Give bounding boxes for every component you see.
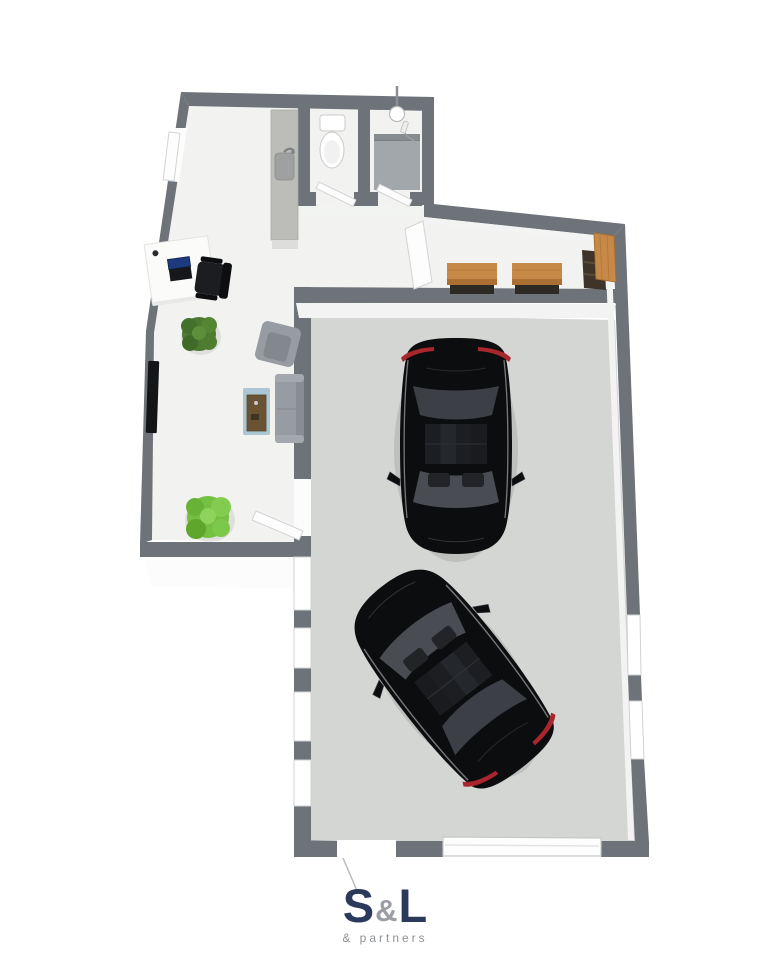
foliage	[212, 519, 230, 537]
face-office-bottom	[144, 557, 311, 589]
table-item-2	[254, 401, 258, 405]
bench-shadow	[450, 284, 494, 294]
coffee-table	[243, 388, 270, 435]
wall-bottom-seg-2	[396, 841, 443, 857]
door-opening-entry	[337, 840, 396, 857]
wall-office-bottom	[140, 542, 311, 557]
workbench-2	[512, 263, 562, 294]
potted-plant-dark	[181, 317, 221, 355]
foliage	[192, 326, 206, 340]
garage-door	[443, 837, 601, 856]
wall-bath-right	[422, 97, 434, 205]
logo-ampersand: &	[375, 895, 397, 926]
logo-letter-s: S	[343, 882, 374, 929]
bench-front	[512, 279, 562, 285]
window-left-4	[294, 760, 311, 806]
cabinet-body	[594, 233, 616, 282]
wall-partition-wc-left	[298, 106, 310, 206]
toilet	[320, 115, 345, 168]
sofa-back	[296, 376, 304, 441]
wall-partition-wc-right	[358, 106, 370, 206]
wall-bottom-seg-1	[294, 840, 337, 857]
wall-shower-bottom-left-stub	[370, 192, 378, 206]
toilet-tank	[320, 115, 345, 131]
workbench-1	[447, 263, 497, 294]
bench-front	[447, 279, 497, 285]
brand-logo: S & L & partners	[300, 882, 470, 944]
sofa-arm-top	[275, 374, 304, 382]
wall-wc-bottom-left-stub	[310, 192, 316, 206]
logo-wordmark: S & L	[300, 882, 470, 929]
wall-left-pillar-1	[294, 610, 311, 628]
sofa	[275, 374, 304, 443]
face-bath-bottom	[300, 206, 422, 215]
faucet-base	[291, 150, 295, 154]
sink-counter	[271, 110, 298, 249]
shower-head-icon	[390, 107, 405, 122]
logo-tagline: & partners	[300, 932, 470, 944]
counter-face	[272, 240, 298, 249]
floorplan-render: S & L & partners	[0, 0, 768, 960]
window-left-3	[294, 692, 311, 741]
foliage	[200, 508, 216, 524]
table-top	[247, 395, 266, 431]
table-item	[251, 414, 259, 420]
wall-right-pillar	[628, 675, 642, 701]
toilet-seat	[324, 140, 340, 164]
wall-left-pillar-2	[294, 668, 311, 692]
sofa-arm-bottom	[275, 435, 304, 443]
car-top	[387, 338, 525, 554]
wall-left-pillar-3	[294, 741, 311, 760]
logo-letter-l: L	[399, 882, 428, 929]
sink-basin	[275, 153, 294, 180]
wall-left-corner	[294, 806, 311, 844]
wall-cabinet	[594, 233, 616, 282]
window-left-1	[294, 557, 311, 610]
face-mid-wall	[296, 303, 616, 318]
window-right-1	[627, 615, 641, 675]
shower-floor	[374, 140, 420, 190]
bench-shadow	[515, 284, 559, 294]
laptop	[167, 257, 192, 282]
garage-door-line	[445, 845, 599, 846]
window-right-2	[629, 701, 644, 759]
potted-plant-bright	[185, 496, 235, 542]
door-opening-office-garage	[294, 479, 311, 536]
window-left-2	[294, 628, 311, 668]
wall-shower-bottom-right-stub	[410, 192, 422, 206]
wall-bottom-seg-3	[601, 841, 649, 857]
floor-plan	[0, 0, 768, 960]
